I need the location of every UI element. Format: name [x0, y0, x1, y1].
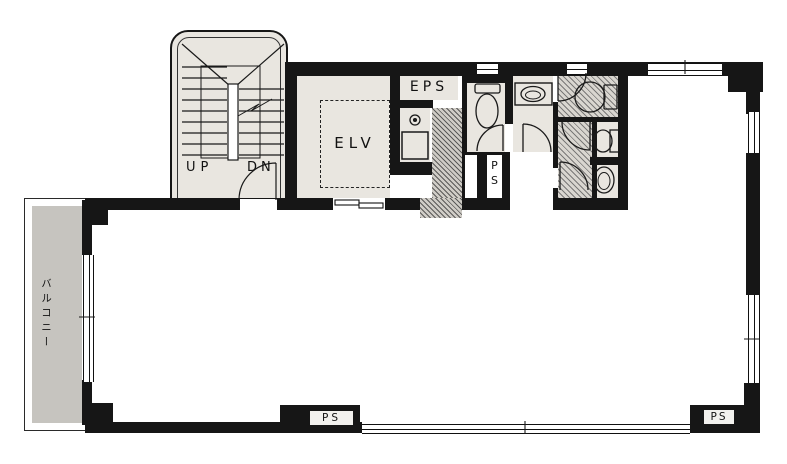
washbasin-room	[513, 68, 553, 152]
wall-segment	[590, 157, 622, 165]
wall-segment	[390, 62, 400, 175]
duct-slot	[465, 155, 477, 198]
stair-door-opening	[240, 199, 277, 210]
stair-up-label: UP	[186, 160, 218, 175]
wc-room-2-large	[558, 73, 618, 117]
wall-segment	[393, 100, 433, 108]
window	[477, 63, 498, 75]
pipe-shaft-top-label: PS	[488, 159, 501, 189]
wc2-door-opening	[553, 76, 558, 102]
wall-segment	[82, 380, 92, 425]
window	[567, 63, 587, 75]
stairwell-inner-wall	[177, 37, 281, 203]
elevator-label: ELV	[322, 134, 388, 152]
window-east-lower	[748, 295, 760, 383]
window-north	[648, 63, 722, 76]
balcony-label: バルコニー	[39, 278, 54, 351]
stair-down-label: DN	[247, 160, 281, 175]
wc-room-1	[467, 83, 505, 152]
duct-space	[432, 108, 462, 198]
wall-corner-sw	[92, 403, 113, 423]
anteroom-door-opening	[552, 168, 558, 188]
wall-east-c	[744, 383, 760, 432]
window-west	[83, 255, 94, 382]
duct-space-protrusion	[420, 198, 462, 218]
wall-corner-ne	[728, 62, 763, 92]
kitchenette-room	[400, 108, 430, 162]
pipe-shaft-bottom-center-label: PS	[310, 411, 353, 425]
window-south	[362, 424, 690, 434]
window-east-upper	[748, 112, 760, 153]
wall-east-b	[746, 153, 760, 295]
pipe-shaft-bottom-right-label: PS	[704, 410, 734, 424]
vestibule	[400, 175, 432, 198]
wall-segment	[390, 162, 432, 175]
wall-corner-nw	[82, 200, 108, 225]
floor-plan-canvas: バルコニー	[0, 0, 787, 464]
wc-anteroom	[558, 122, 592, 198]
wc1-door-opening	[505, 124, 513, 152]
wall-segment	[285, 62, 297, 210]
elevator-door-opening	[333, 198, 385, 210]
toilet-corridor	[510, 152, 553, 210]
eps-label: EPS	[400, 79, 458, 95]
wall-east-a	[746, 92, 760, 114]
